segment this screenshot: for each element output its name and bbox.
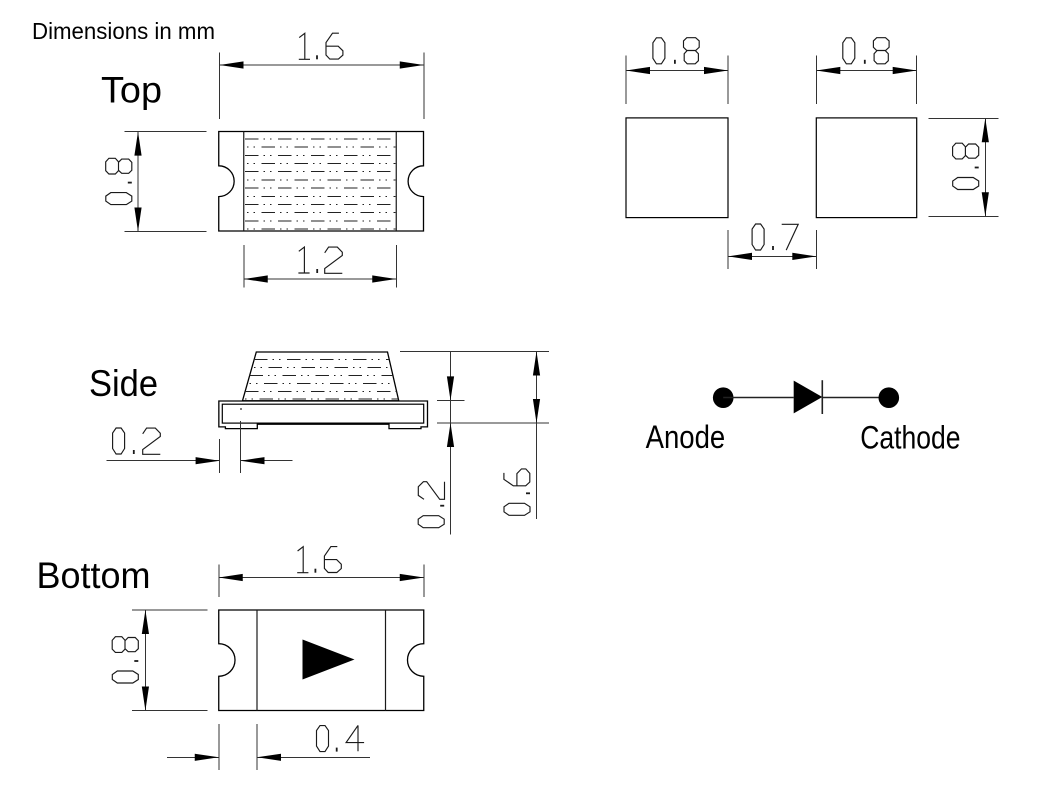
svg-text:Top: Top: [101, 70, 162, 111]
svg-text:Side: Side: [89, 363, 158, 404]
svg-text:Dimensions in mm: Dimensions in mm: [32, 18, 215, 44]
svg-text:Cathode: Cathode: [860, 420, 960, 456]
svg-text:Bottom: Bottom: [37, 555, 151, 596]
svg-text:Anode: Anode: [646, 419, 726, 455]
